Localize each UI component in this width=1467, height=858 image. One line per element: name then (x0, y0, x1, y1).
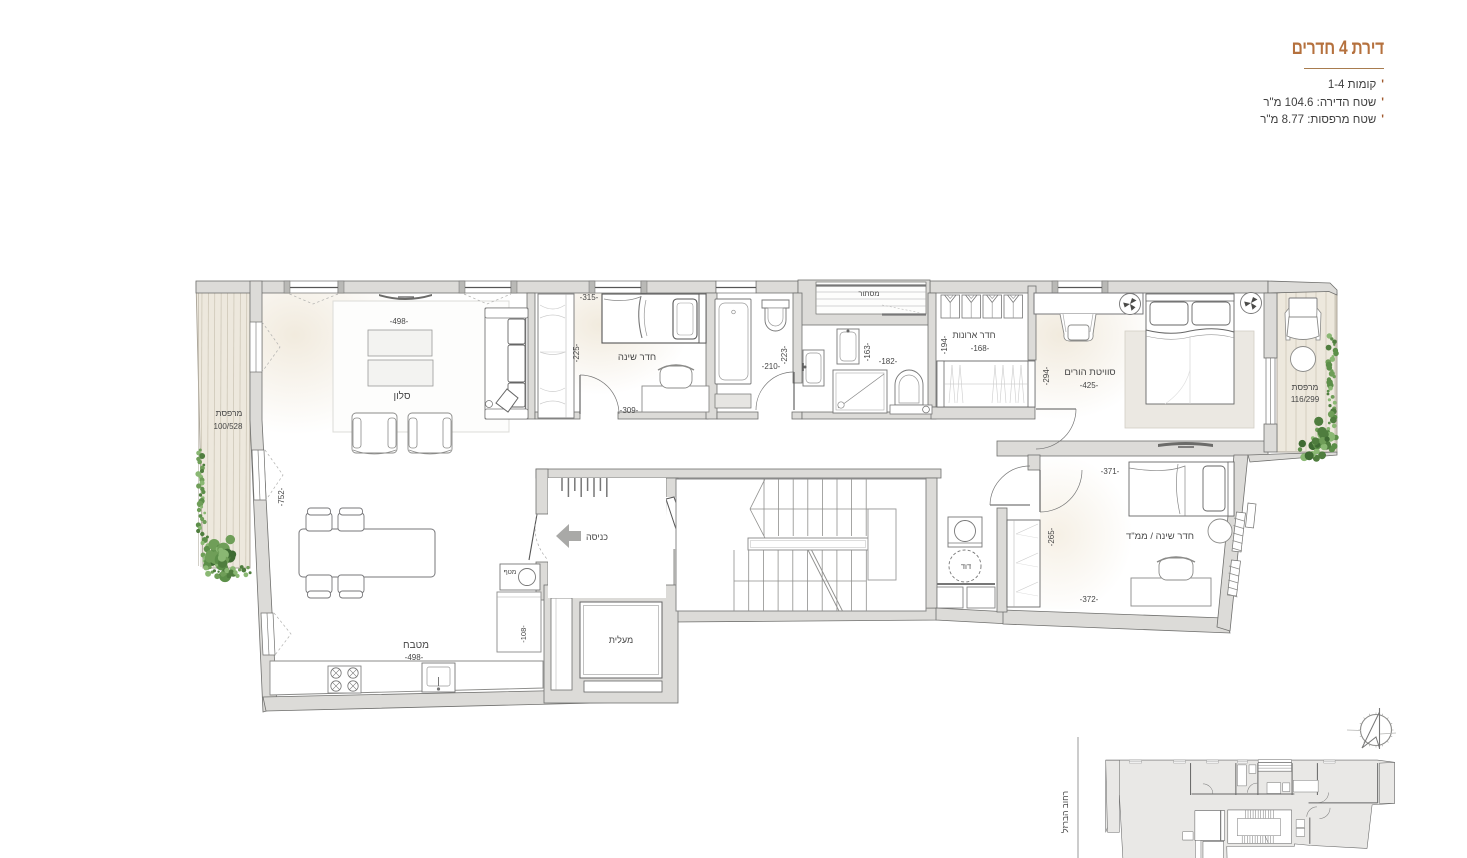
svg-text:-309-: -309- (620, 406, 639, 415)
svg-text:מסתור: מסתור (858, 289, 879, 298)
svg-text:דוד: דוד (961, 562, 971, 571)
svg-text:-225-: -225- (572, 343, 581, 362)
svg-text:-163-: -163- (863, 342, 872, 361)
svg-text:-425-: -425- (1080, 381, 1099, 390)
svg-text:100/528: 100/528 (214, 422, 243, 431)
svg-text:-315-: -315- (580, 293, 599, 302)
svg-text:מטף: מטף (504, 569, 517, 576)
svg-text:-265-: -265- (1047, 527, 1056, 546)
svg-text:-752-: -752- (277, 487, 286, 506)
svg-text:חדר ארונות: חדר ארונות (952, 330, 995, 340)
svg-text:-498-: -498- (390, 317, 409, 326)
svg-text:סלון: סלון (393, 390, 410, 402)
svg-text:-372-: -372- (1080, 595, 1099, 604)
svg-text:מרפסת: מרפסת (1292, 382, 1319, 392)
svg-text:כניסה: כניסה (586, 532, 608, 542)
svg-text:מטבח: מטבח (403, 640, 429, 651)
svg-text:-210-: -210- (762, 362, 781, 371)
svg-text:רחוב הברזל: רחוב הברזל (1060, 791, 1070, 833)
svg-text:-223-: -223- (780, 345, 789, 364)
svg-text:-294-: -294- (1042, 366, 1051, 385)
svg-text:חדר שינה: חדר שינה (618, 352, 656, 363)
svg-text:-498-: -498- (405, 653, 424, 662)
svg-text:-194-: -194- (940, 335, 949, 354)
svg-text:116/299: 116/299 (1291, 395, 1320, 404)
svg-text:-108-: -108- (519, 625, 528, 643)
svg-text:מרפסת: מרפסת (216, 408, 243, 418)
svg-text:-168-: -168- (971, 344, 990, 353)
svg-text:-371-: -371- (1101, 467, 1120, 476)
svg-text:סוויטת הורים: סוויטת הורים (1064, 367, 1115, 378)
svg-text:-182-: -182- (879, 357, 898, 366)
svg-text:חדר שינה / ממ"ד: חדר שינה / ממ"ד (1126, 531, 1194, 542)
svg-text:מעלית: מעלית (609, 635, 633, 645)
